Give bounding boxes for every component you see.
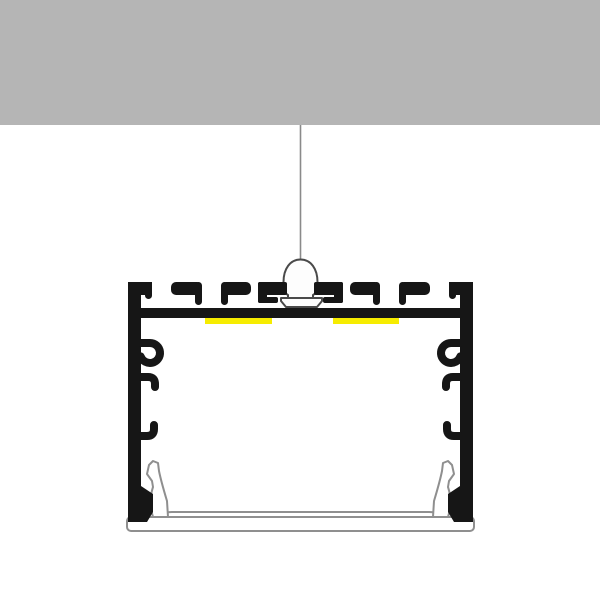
aluminium-profile-body: [128, 282, 473, 522]
mount-slot-lip: [258, 297, 278, 303]
profile-suspension-diagram: [0, 0, 600, 600]
hook-up: [141, 425, 154, 436]
ceiling: [0, 0, 600, 125]
diagram-canvas: [0, 0, 600, 600]
diffuser-cover: [127, 461, 474, 531]
top-flange-leg: [221, 282, 228, 305]
screw-boss-hooks: [141, 343, 160, 436]
diffuser-plate: [127, 517, 474, 531]
mount-bell: [283, 260, 317, 300]
led-strip-right: [333, 318, 399, 324]
screw-boss-curl: [141, 343, 160, 363]
top-flange-leg: [195, 282, 202, 305]
mount-foot-flange: [281, 298, 322, 307]
profile-inner-top-plate: [138, 308, 463, 318]
hook-down: [141, 377, 155, 387]
top-flange-nub: [145, 282, 152, 299]
led-strip-left: [205, 318, 272, 324]
